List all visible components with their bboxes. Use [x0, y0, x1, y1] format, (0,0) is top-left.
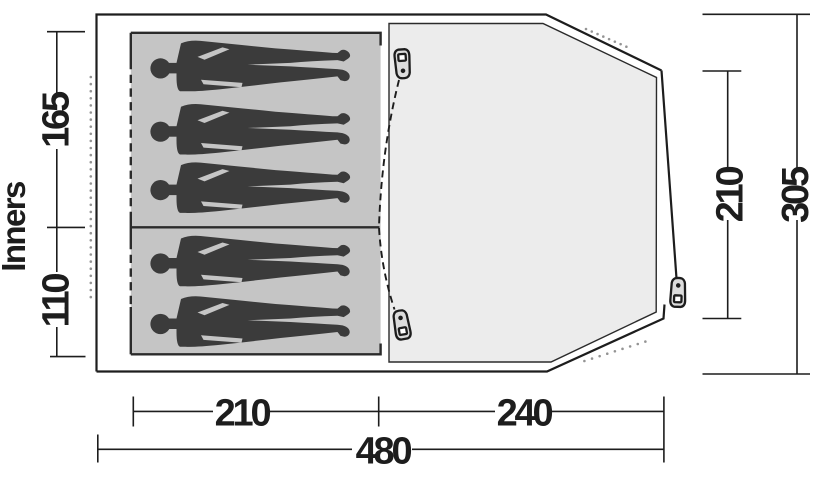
svg-text:240: 240: [497, 393, 553, 435]
svg-text:Inners: Inners: [0, 182, 32, 272]
svg-text:110: 110: [36, 274, 78, 328]
svg-text:305: 305: [775, 166, 815, 223]
svg-text:210: 210: [215, 393, 271, 435]
svg-text:480: 480: [356, 431, 412, 473]
svg-text:210: 210: [710, 167, 752, 223]
svg-text:165: 165: [36, 91, 78, 148]
